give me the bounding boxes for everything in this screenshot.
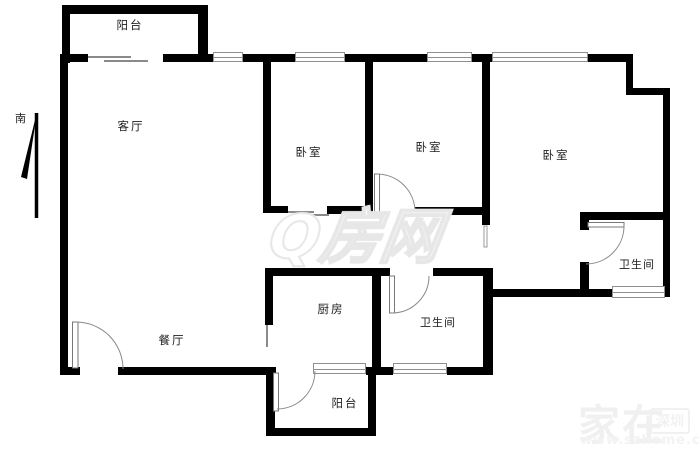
balcony-door-arc [277, 371, 315, 409]
window-bath-mid [393, 363, 447, 374]
wall-bottom-seg-c [366, 367, 393, 375]
bath-right-door-leaf [588, 223, 624, 228]
wall-bath-right-left-b [580, 262, 589, 297]
room-label-bedroom1: 卧室 [296, 144, 323, 160]
wall-bath-right-left-a [580, 212, 589, 230]
room-label-bedroom3: 卧室 [543, 147, 570, 163]
window-top-1 [213, 52, 243, 62]
wall-balcony-top [62, 5, 208, 14]
wall-bottom-seg-a [60, 367, 80, 375]
room-label-bath-mid: 卫生间 [420, 314, 456, 330]
sliding-door-line-1 [88, 56, 131, 58]
watermark-corner-badge: 深圳 [650, 408, 690, 434]
window-top-4 [492, 52, 588, 62]
room-label-dining: 餐厅 [159, 332, 186, 348]
wall-balcony2-left [266, 375, 275, 436]
window-kitchen [313, 363, 366, 374]
room-label-balcony-bottom: 阳台 [332, 395, 359, 411]
wall-divider-bedroom1-left [263, 60, 271, 213]
wall-bedroom3-bottom [580, 212, 670, 220]
sliding-door-line-2 [104, 60, 148, 62]
compass-south-label: 南 [15, 110, 26, 126]
bath-mid-door-arc [392, 276, 429, 313]
room-label-bath-right: 卫生间 [619, 256, 655, 272]
wall-bottom-seg-d [447, 367, 493, 375]
wall-balcony2-right [368, 375, 376, 436]
entry-door-arc [76, 322, 123, 369]
room-label-kitchen: 厨房 [318, 301, 345, 317]
bath-mid-door-leaf [390, 276, 395, 313]
window-bath-right [612, 286, 665, 298]
window-top-2 [295, 52, 345, 62]
wall-left-exterior [60, 54, 68, 375]
window-top-3 [427, 52, 472, 62]
wall-right-exterior [663, 88, 670, 297]
bedroom3-door-leaf [484, 226, 487, 247]
room-label-living: 客厅 [118, 118, 145, 134]
watermark-corner-sub: www.szhome.com [580, 433, 700, 448]
wall-top-seg-d [345, 54, 427, 62]
wall-balcony2-bottom [266, 428, 376, 436]
wall-bottom-seg-b [118, 367, 276, 375]
entry-door-leaf [73, 322, 79, 368]
watermark-center-logo: Q房网 [264, 189, 447, 276]
kitchen-doorway-leaf [266, 325, 268, 347]
room-label-balcony-top: 阳台 [117, 17, 144, 33]
wall-top-seg-b [163, 54, 213, 62]
wall-kitchen-right [372, 268, 381, 375]
wall-kitchen-left [265, 268, 273, 325]
floor-plan: 南 阳台 客厅 卧室 卧室 卧室 餐厅 厨房 卫生间 卫生间 阳台 Q房网 家在… [0, 0, 700, 455]
wall-divider-bedroom3-left [482, 60, 490, 225]
room-label-bedroom2: 卧室 [416, 139, 443, 155]
wall-bath-mid-right [483, 268, 493, 375]
